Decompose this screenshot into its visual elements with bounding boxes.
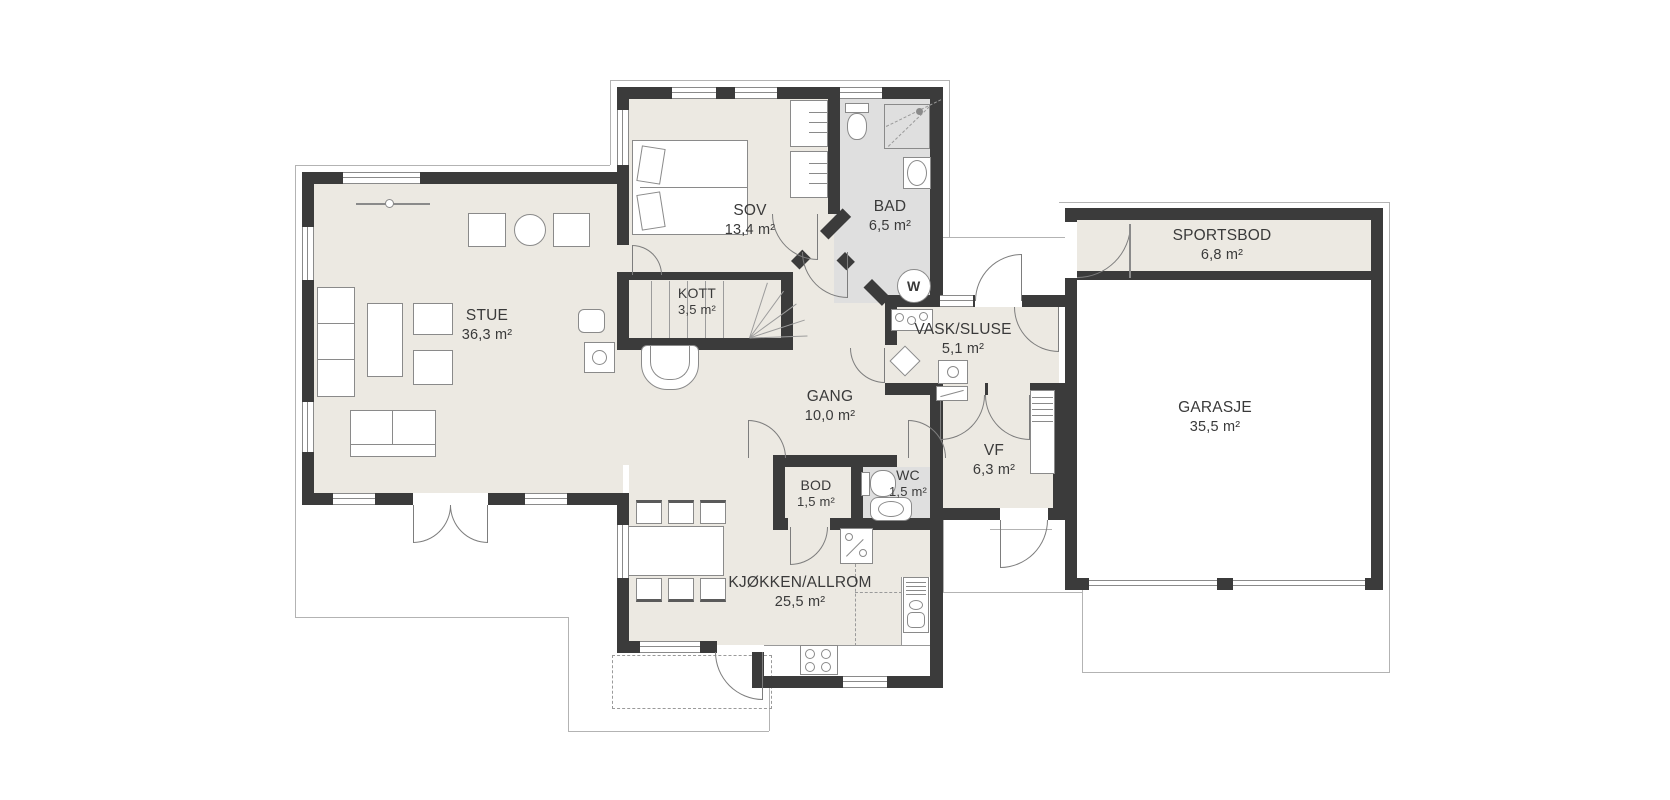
window [940, 295, 973, 307]
window [302, 227, 314, 280]
drainboard-line [906, 586, 926, 587]
room-label-garasje: GARASJE 35,5 m² [1178, 398, 1252, 437]
door-opening [988, 383, 1030, 395]
entrance-outline [943, 592, 1082, 593]
entrance-outline [943, 520, 944, 592]
stove-flue [592, 350, 607, 365]
wall [1217, 578, 1233, 590]
room-area: 6,5 m² [869, 217, 911, 236]
dining-table [628, 526, 724, 576]
room-label-gang: GANG 10,0 m² [805, 387, 856, 426]
room-area: 13,4 m² [725, 221, 776, 240]
kitchen-counter-bottom [764, 645, 930, 677]
round-side-table [514, 214, 546, 246]
drainboard-line [906, 594, 926, 595]
window [617, 110, 629, 165]
room-label-vask-sluse: VASK/SLUSE 5,1 m² [914, 320, 1011, 359]
room-label-bad: BAD 6,5 m² [869, 197, 911, 236]
sofa-cushion-line [318, 323, 354, 324]
room-name: SOV [725, 201, 776, 221]
stair-tread [723, 281, 724, 338]
roof-outline [295, 165, 610, 166]
wardrobe-shelf [809, 112, 827, 113]
terrace-outline [568, 731, 769, 732]
burner [805, 662, 815, 672]
dining-chair [700, 578, 726, 602]
garage-door-line [1233, 585, 1365, 586]
window [843, 676, 887, 688]
window [735, 87, 777, 99]
french-door-left [413, 505, 451, 543]
window [525, 493, 567, 505]
drainboard-line [906, 590, 926, 591]
room-label-vf: VF 6,3 m² [973, 441, 1015, 480]
dining-chair [668, 578, 694, 602]
room-label-sportsbod: SPORTSBOD 6,8 m² [1173, 226, 1272, 265]
wall [773, 455, 785, 530]
burner [805, 649, 815, 659]
room-area: 35,5 m² [1178, 418, 1252, 437]
room-area: 3,5 m² [678, 302, 716, 319]
room-name: GANG [805, 387, 856, 407]
armchair [553, 213, 590, 247]
room-name: GARASJE [1178, 398, 1252, 418]
room-area: 5,1 m² [914, 340, 1011, 359]
shower-head [916, 108, 923, 115]
wall [617, 272, 629, 350]
wardrobe-slat [1032, 397, 1053, 398]
burner [821, 662, 831, 672]
room-label-sov: SOV 13,4 m² [725, 201, 776, 240]
room-name: VF [973, 441, 1015, 461]
room-name: BAD [869, 197, 911, 217]
window [640, 641, 700, 653]
room-area: 6,3 m² [973, 461, 1015, 480]
sofa [350, 410, 436, 457]
wardrobe-shelf [809, 132, 827, 133]
room-name: KJØKKEN/ALLROM [728, 573, 871, 593]
sink-bowl-small [909, 600, 923, 610]
wall [302, 172, 314, 505]
driveway-outline [1082, 590, 1083, 672]
washbasin-bowl [907, 160, 927, 186]
stair-tread [669, 281, 670, 338]
dining-chair [668, 500, 694, 524]
walkway-roof-line [943, 237, 1065, 238]
garage-door-line [1233, 580, 1365, 581]
side-table [578, 309, 605, 333]
window [343, 172, 420, 184]
sofa-cushion-line [318, 359, 354, 360]
stair-tread [651, 281, 652, 338]
wardrobe-shelf [809, 173, 827, 174]
french-door-right [450, 505, 488, 543]
wardrobe [790, 100, 828, 147]
garage-door-line [1089, 580, 1217, 581]
door-arc-vf-exterior [1000, 520, 1048, 568]
garage-roof-outline [1389, 202, 1390, 672]
driveway-outline [1082, 672, 1390, 673]
wardrobe-slat [1032, 421, 1053, 422]
door-arc-vask-exterior [975, 254, 1022, 301]
window [840, 87, 882, 99]
room-area: 1,5 m² [797, 494, 835, 511]
door-opening [413, 493, 488, 505]
wall [1077, 271, 1377, 280]
room-area: 10,0 m² [805, 407, 856, 426]
burner [821, 649, 831, 659]
wall [1065, 208, 1383, 220]
sofa-seat-line [351, 444, 435, 445]
sofa-cushion-line [392, 411, 393, 444]
wardrobe-slat [1032, 415, 1053, 416]
drainboard-line [906, 582, 926, 583]
sink-bowl-main [907, 612, 925, 628]
door-opening [1000, 508, 1048, 520]
dining-chair [636, 500, 662, 524]
armchair [413, 350, 453, 385]
washing-machine-label: W [907, 278, 920, 294]
wall [828, 93, 840, 214]
room-area: 36,3 m² [462, 326, 513, 345]
tv-mount [385, 199, 394, 208]
dining-chair [636, 578, 662, 602]
room-area: 6,8 m² [1173, 246, 1272, 265]
room-label-stue: STUE 36,3 m² [462, 306, 513, 345]
coffee-table [367, 303, 403, 377]
toilet-bowl [847, 113, 867, 140]
room-label-bod: BOD 1,5 m² [797, 476, 835, 511]
bed-split-line [640, 187, 747, 188]
dining-chair [700, 500, 726, 524]
room-label-kjokken-allrom: KJØKKEN/ALLROM 25,5 m² [728, 573, 871, 612]
wardrobe-slat [1032, 409, 1053, 410]
room-label-kott: KOTT 3,5 m² [678, 284, 716, 319]
room-area: 25,5 m² [728, 593, 871, 612]
wardrobe [790, 151, 828, 198]
wardrobe-shelf [809, 183, 827, 184]
garage-roof-outline [1059, 202, 1389, 203]
window [333, 493, 375, 505]
wc-basin-bowl [878, 501, 904, 517]
window [302, 402, 314, 452]
toilet-tank [845, 103, 869, 113]
wardrobe-shelf [809, 163, 827, 164]
wall [617, 87, 943, 99]
room-name: VASK/SLUSE [914, 320, 1011, 340]
room-name: WC [889, 466, 927, 484]
toilet-tank [861, 472, 870, 496]
room-label-wc: WC 1,5 m² [889, 466, 927, 501]
wardrobe-shelf [809, 122, 827, 123]
laundry-sink-bowl [895, 313, 904, 322]
floor-plan: W STUE [0, 0, 1670, 800]
room-name: BOD [797, 476, 835, 494]
washer-drum [947, 366, 959, 378]
armchair [468, 213, 506, 247]
room-area: 1,5 m² [889, 484, 927, 501]
door-opening [1065, 222, 1077, 278]
wardrobe-slat [1032, 403, 1053, 404]
roof-outline [610, 80, 949, 81]
sofa [317, 287, 355, 397]
door-leaf-sportsbod [1129, 224, 1131, 278]
room-name: STUE [462, 306, 513, 326]
armchair [413, 303, 453, 335]
room-name: KOTT [678, 284, 716, 302]
window [672, 87, 716, 99]
fridge-symbol-dot [859, 549, 867, 557]
wall [930, 87, 943, 307]
door-opening [617, 245, 629, 272]
roof-outline [610, 80, 611, 165]
roof-outline [949, 80, 950, 237]
fridge-symbol-dot [845, 533, 853, 541]
roof-outline [295, 165, 296, 617]
room-name: SPORTSBOD [1173, 226, 1272, 246]
terrace-outline [568, 617, 569, 731]
wall [1371, 208, 1383, 590]
garage-door-line [1089, 585, 1217, 586]
terrace-outline [295, 617, 568, 618]
tub-chair-inner [650, 345, 690, 380]
